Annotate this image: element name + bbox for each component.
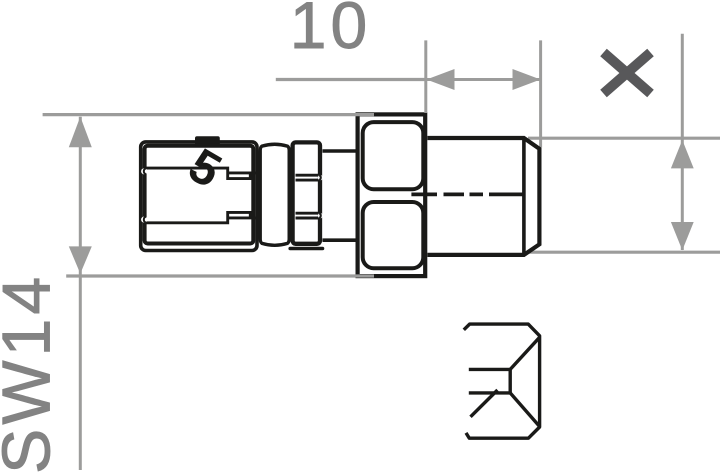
svg-text:SW14: SW14 (0, 273, 64, 474)
svg-text:10: 10 (290, 0, 371, 62)
